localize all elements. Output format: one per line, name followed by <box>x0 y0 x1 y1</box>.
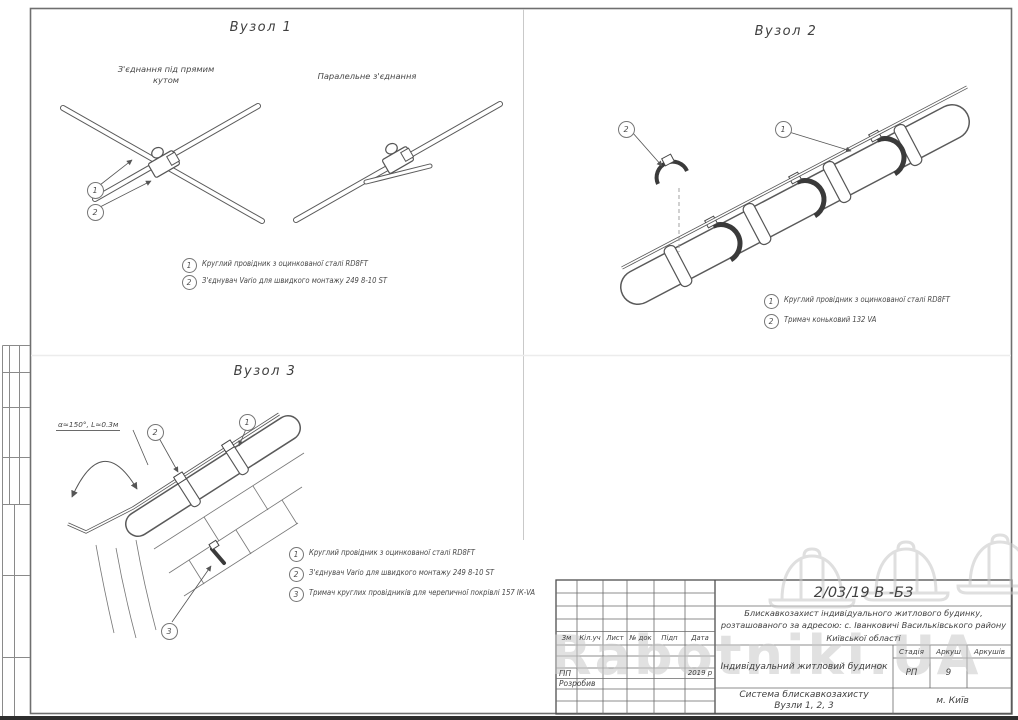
stage-value: РП <box>893 658 930 688</box>
node1-label-parallel: Паралельне з'єднання <box>302 71 432 82</box>
node1-callout-1: 1 <box>87 182 104 199</box>
object-name: Індивідуальний житловий будинок <box>715 645 893 688</box>
node1-legend-num-2: 2 <box>182 275 197 290</box>
col-header-kiluch: Кіл.уч <box>577 632 603 646</box>
drawing-sheet: Rabotniki.UA Вузол 1 З'єднання під прями… <box>0 0 1018 720</box>
node3-legend-num-2: 2 <box>289 567 304 582</box>
node2-title: Вузол 2 <box>726 24 846 39</box>
sheet-number: 9 <box>930 658 967 688</box>
margin-boxes <box>3 346 31 717</box>
col-header-pidp: Підп <box>654 632 685 646</box>
node3-legend-text-1: Круглий провідник з оцинкованої сталі RD… <box>309 548 475 557</box>
node1-callout-2: 2 <box>87 204 104 221</box>
node3-callout-2: 2 <box>147 424 164 441</box>
bend-angle-arrow <box>72 461 137 497</box>
node3-title: Вузол 3 <box>205 364 325 379</box>
node3-legend-num-3: 3 <box>289 587 304 602</box>
node2-legend-num-1: 1 <box>764 294 779 309</box>
tile-holder <box>209 540 224 563</box>
col-header-data: Дата <box>685 632 715 646</box>
node3-callout-1: 1 <box>239 414 256 431</box>
col-header-ndok: № док <box>627 632 654 646</box>
doc-number: 2/03/19 В -БЗ <box>715 580 1012 606</box>
project-description: Блискавкозахист індивідуального житловог… <box>715 606 1012 645</box>
city: м. Київ <box>893 688 1012 714</box>
node1-parallel-drawing <box>296 104 500 220</box>
node3-legend-num-1: 1 <box>289 547 304 562</box>
sheets-total-value <box>967 658 1012 688</box>
node2-legend-num-2: 2 <box>764 314 779 329</box>
node3-legend-text-3: Тримач круглих провідників для черепично… <box>309 588 535 597</box>
role-gip: ГІП <box>559 668 599 679</box>
stage-header: Стадія <box>893 645 930 658</box>
node1-legend-text-2: З'єднувач Vario для швидкого монтажу 249… <box>202 276 387 285</box>
node1-title: Вузол 1 <box>201 20 321 35</box>
node1-legend-text-1: Круглий провідник з оцинкованої сталі RD… <box>202 259 368 268</box>
node3-bend-annotation: α≈150°, L≈0.3м <box>56 420 120 431</box>
node2-ridge-drawing <box>622 87 967 288</box>
node3-callout-3: 3 <box>161 623 178 640</box>
sheet-title: Система блискавкозахисту Вузли 1, 2, 3 <box>715 688 893 714</box>
sheet-header: Аркуш <box>930 645 967 658</box>
node3-roof-drawing <box>68 414 304 638</box>
node1-legend-num-1: 1 <box>182 258 197 273</box>
role-developer: Розробив <box>559 679 614 690</box>
col-header-lyst: Лист <box>603 632 627 646</box>
gip-year: 2019 р <box>685 668 715 679</box>
node3-legend-text-2: З'єднувач Vario для швидкого монтажу 249… <box>309 568 494 577</box>
node2-legend-text-1: Круглий провідник з оцинкованої сталі RD… <box>784 295 950 304</box>
node2-legend-text-2: Тримач коньковий 132 VA <box>784 315 876 324</box>
node2-callout-1: 1 <box>775 121 792 138</box>
sheets-total-header: Аркушів <box>967 645 1012 658</box>
node1-label-right-angle: З'єднання під прямим кутом <box>106 64 226 86</box>
node2-callout-2: 2 <box>618 121 635 138</box>
col-header-zm: Зм <box>556 632 577 646</box>
